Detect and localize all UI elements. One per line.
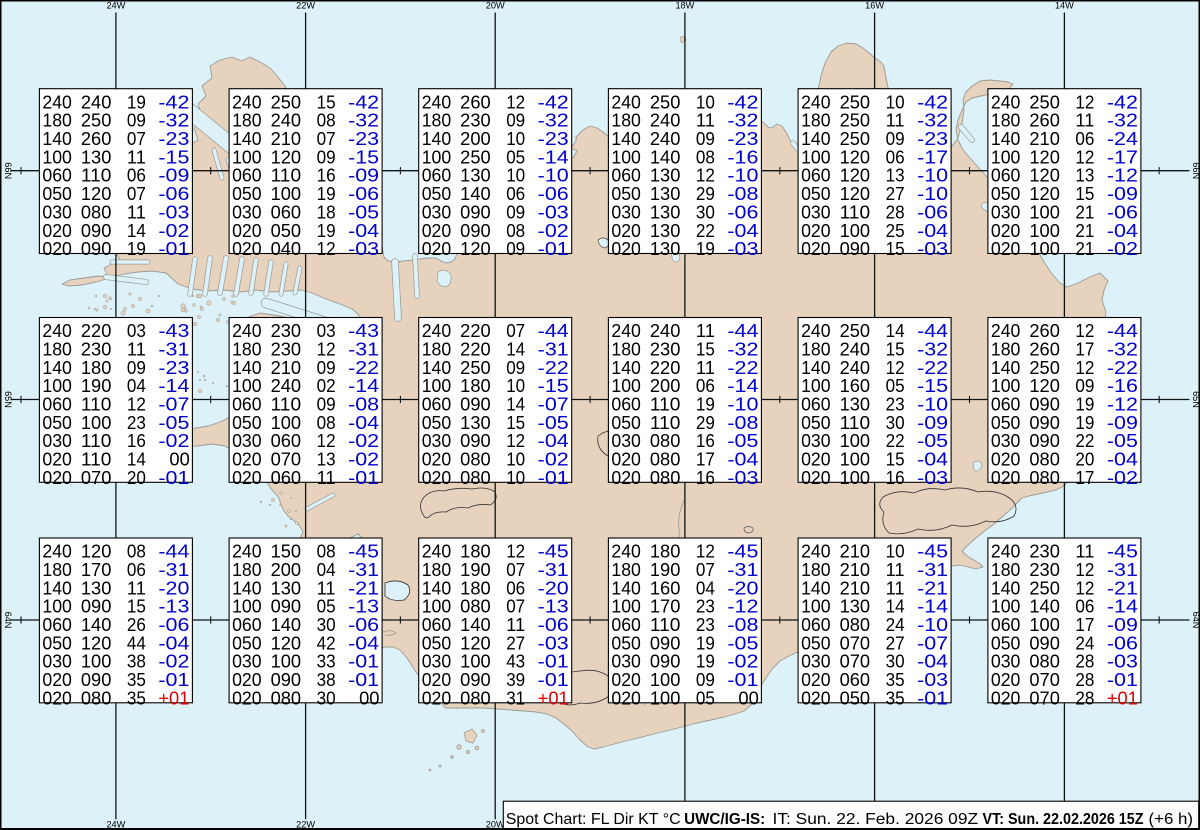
- svg-text:42: 42: [317, 633, 336, 653]
- svg-text:230: 230: [81, 340, 112, 360]
- svg-text:100: 100: [232, 376, 262, 396]
- svg-text:-12: -12: [1107, 166, 1138, 186]
- svg-text:-17: -17: [1107, 147, 1138, 167]
- svg-text:-03: -03: [348, 239, 379, 259]
- svg-text:030: 030: [611, 652, 641, 672]
- svg-text:180: 180: [422, 560, 452, 580]
- svg-text:21: 21: [1075, 239, 1094, 259]
- svg-text:07: 07: [127, 129, 146, 149]
- svg-text:240: 240: [611, 542, 641, 562]
- svg-text:100: 100: [650, 688, 681, 708]
- svg-text:06: 06: [1075, 129, 1094, 149]
- svg-text:060: 060: [801, 615, 831, 635]
- svg-text:-23: -23: [917, 129, 948, 149]
- svg-text:22: 22: [886, 431, 905, 451]
- svg-text:27: 27: [886, 184, 905, 204]
- svg-text:12: 12: [506, 92, 525, 112]
- svg-text:220: 220: [460, 321, 491, 341]
- svg-text:09: 09: [506, 111, 525, 131]
- svg-text:-04: -04: [538, 431, 569, 451]
- svg-text:030: 030: [611, 431, 641, 451]
- svg-text:-02: -02: [538, 221, 569, 241]
- svg-text:-04: -04: [158, 633, 189, 653]
- svg-text:15: 15: [1075, 184, 1094, 204]
- svg-text:-21: -21: [1107, 578, 1138, 598]
- svg-text:-04: -04: [917, 450, 948, 470]
- svg-text:060: 060: [801, 166, 831, 186]
- svg-text:-13: -13: [348, 597, 379, 617]
- svg-text:180: 180: [991, 340, 1021, 360]
- svg-text:140: 140: [611, 578, 641, 598]
- svg-text:200: 200: [650, 376, 681, 396]
- svg-text:-10: -10: [917, 166, 948, 186]
- svg-text:170: 170: [81, 560, 112, 580]
- svg-text:-22: -22: [538, 358, 569, 378]
- svg-text:06: 06: [696, 376, 715, 396]
- svg-text:120: 120: [840, 184, 871, 204]
- svg-text:020: 020: [42, 468, 72, 488]
- svg-text:04: 04: [127, 376, 146, 396]
- svg-text:-14: -14: [727, 376, 758, 396]
- svg-text:090: 090: [460, 221, 491, 241]
- svg-text:-44: -44: [727, 321, 758, 341]
- svg-text:050: 050: [611, 413, 641, 433]
- svg-text:210: 210: [840, 542, 871, 562]
- svg-text:-05: -05: [158, 413, 189, 433]
- svg-text:050: 050: [232, 413, 262, 433]
- svg-text:-31: -31: [538, 340, 569, 360]
- svg-text:28: 28: [886, 202, 905, 222]
- svg-text:020: 020: [232, 670, 262, 690]
- svg-text:-31: -31: [158, 560, 189, 580]
- svg-text:030: 030: [422, 202, 452, 222]
- svg-text:100: 100: [422, 597, 452, 617]
- svg-text:09: 09: [317, 358, 336, 378]
- svg-text:090: 090: [1029, 431, 1060, 451]
- svg-text:27: 27: [886, 633, 905, 653]
- svg-text:260: 260: [81, 129, 112, 149]
- svg-text:-09: -09: [1107, 184, 1138, 204]
- svg-text:100: 100: [1029, 615, 1060, 635]
- svg-text:11: 11: [506, 615, 525, 635]
- svg-text:140: 140: [232, 129, 262, 149]
- svg-text:060: 060: [232, 615, 262, 635]
- svg-text:020: 020: [232, 450, 262, 470]
- svg-text:240: 240: [991, 542, 1021, 562]
- svg-text:100: 100: [42, 376, 72, 396]
- svg-text:12: 12: [1075, 321, 1094, 341]
- svg-text:-09: -09: [348, 166, 379, 186]
- svg-text:120: 120: [840, 166, 871, 186]
- svg-text:020: 020: [611, 688, 641, 708]
- svg-text:240: 240: [611, 321, 641, 341]
- svg-text:07: 07: [506, 321, 525, 341]
- svg-text:12: 12: [317, 239, 336, 259]
- svg-text:180: 180: [650, 542, 681, 562]
- svg-text:-32: -32: [348, 111, 379, 131]
- svg-text:030: 030: [42, 652, 72, 672]
- svg-text:070: 070: [840, 652, 871, 672]
- svg-text:-31: -31: [348, 340, 379, 360]
- svg-text:-32: -32: [727, 340, 758, 360]
- svg-text:14: 14: [506, 340, 525, 360]
- svg-text:07: 07: [506, 597, 525, 617]
- svg-text:100: 100: [460, 652, 491, 672]
- svg-text:130: 130: [650, 239, 681, 259]
- svg-text:08: 08: [317, 413, 336, 433]
- svg-text:-01: -01: [1107, 670, 1138, 690]
- svg-text:11: 11: [886, 560, 905, 580]
- svg-text:09: 09: [506, 239, 525, 259]
- svg-text:130: 130: [460, 413, 491, 433]
- svg-text:-03: -03: [917, 670, 948, 690]
- svg-text:12: 12: [1075, 358, 1094, 378]
- svg-text:16: 16: [317, 166, 336, 186]
- svg-text:-04: -04: [727, 450, 758, 470]
- svg-text:240: 240: [991, 321, 1021, 341]
- svg-text:06: 06: [886, 147, 905, 167]
- svg-text:020: 020: [42, 450, 72, 470]
- svg-text:-44: -44: [917, 321, 948, 341]
- svg-text:210: 210: [271, 358, 302, 378]
- svg-text:110: 110: [271, 166, 302, 186]
- svg-text:090: 090: [460, 431, 491, 451]
- svg-text:100: 100: [42, 147, 72, 167]
- svg-text:070: 070: [1029, 670, 1060, 690]
- svg-text:090: 090: [460, 202, 491, 222]
- svg-text:130: 130: [650, 221, 681, 241]
- svg-text:240: 240: [422, 321, 452, 341]
- svg-text:090: 090: [1029, 395, 1060, 415]
- svg-text:-03: -03: [917, 239, 948, 259]
- svg-text:020: 020: [42, 239, 72, 259]
- svg-text:050: 050: [271, 221, 302, 241]
- svg-text:080: 080: [460, 450, 491, 470]
- svg-text:190: 190: [650, 560, 681, 580]
- svg-text:-42: -42: [348, 92, 379, 112]
- svg-text:22: 22: [1075, 431, 1094, 451]
- svg-text:140: 140: [1029, 597, 1060, 617]
- svg-text:31: 31: [506, 688, 525, 708]
- svg-text:180: 180: [42, 560, 72, 580]
- svg-text:180: 180: [232, 111, 262, 131]
- svg-text:VT: Sun. 22.02.2026 15Z: VT: Sun. 22.02.2026 15Z: [983, 811, 1144, 828]
- svg-text:30: 30: [317, 615, 336, 635]
- svg-text:17: 17: [1075, 468, 1094, 488]
- svg-text:15: 15: [317, 92, 336, 112]
- svg-text:26: 26: [127, 615, 146, 635]
- svg-text:-05: -05: [917, 431, 948, 451]
- svg-text:090: 090: [1029, 633, 1060, 653]
- svg-text:100: 100: [611, 597, 641, 617]
- svg-text:020: 020: [422, 450, 452, 470]
- svg-text:240: 240: [232, 542, 262, 562]
- svg-text:050: 050: [232, 184, 262, 204]
- svg-text:020: 020: [422, 670, 452, 690]
- svg-text:080: 080: [840, 615, 871, 635]
- svg-text:27: 27: [506, 633, 525, 653]
- svg-text:060: 060: [611, 395, 641, 415]
- svg-text:-01: -01: [538, 670, 569, 690]
- svg-text:100: 100: [840, 431, 871, 451]
- svg-text:020: 020: [801, 688, 831, 708]
- svg-text:020: 020: [801, 239, 831, 259]
- svg-text:250: 250: [840, 111, 871, 131]
- svg-text:-10: -10: [917, 615, 948, 635]
- svg-text:240: 240: [650, 129, 681, 149]
- svg-text:050: 050: [42, 633, 72, 653]
- svg-text:140: 140: [460, 184, 491, 204]
- svg-text:38: 38: [317, 670, 336, 690]
- svg-text:15: 15: [696, 340, 715, 360]
- svg-text:-42: -42: [917, 92, 948, 112]
- svg-text:020: 020: [42, 688, 72, 708]
- svg-text:+01: +01: [1107, 688, 1138, 708]
- svg-text:100: 100: [422, 147, 452, 167]
- svg-text:17: 17: [696, 450, 715, 470]
- svg-text:-01: -01: [538, 468, 569, 488]
- svg-text:180: 180: [460, 376, 491, 396]
- svg-text:020: 020: [991, 221, 1021, 241]
- svg-text:100: 100: [801, 597, 831, 617]
- svg-text:030: 030: [991, 202, 1021, 222]
- svg-text:030: 030: [232, 431, 262, 451]
- svg-text:130: 130: [650, 184, 681, 204]
- svg-text:130: 130: [840, 597, 871, 617]
- svg-text:240: 240: [801, 321, 831, 341]
- svg-text:-01: -01: [727, 670, 758, 690]
- svg-text:150: 150: [271, 542, 302, 562]
- svg-text:35: 35: [127, 670, 146, 690]
- svg-text:070: 070: [81, 468, 112, 488]
- svg-text:12: 12: [1075, 147, 1094, 167]
- svg-text:13: 13: [886, 166, 905, 186]
- svg-text:-01: -01: [158, 468, 189, 488]
- svg-text:13: 13: [1075, 166, 1094, 186]
- svg-text:100: 100: [991, 597, 1021, 617]
- svg-text:060: 060: [801, 395, 831, 415]
- svg-text:-04: -04: [1107, 450, 1138, 470]
- svg-text:050: 050: [801, 633, 831, 653]
- svg-text:24: 24: [886, 615, 905, 635]
- svg-text:-02: -02: [158, 652, 189, 672]
- svg-text:14W: 14W: [1055, 1, 1074, 11]
- svg-text:140: 140: [271, 615, 302, 635]
- svg-text:240: 240: [271, 111, 302, 131]
- svg-text:020: 020: [801, 221, 831, 241]
- svg-text:10: 10: [506, 166, 525, 186]
- svg-text:020: 020: [232, 688, 262, 708]
- svg-text:14: 14: [127, 450, 146, 470]
- svg-text:-42: -42: [538, 92, 569, 112]
- svg-text:060: 060: [422, 395, 452, 415]
- svg-text:-07: -07: [158, 395, 189, 415]
- svg-text:-31: -31: [727, 560, 758, 580]
- svg-text:-08: -08: [727, 413, 758, 433]
- svg-text:11: 11: [127, 202, 146, 222]
- svg-text:200: 200: [460, 129, 491, 149]
- svg-text:020: 020: [42, 221, 72, 241]
- svg-text:230: 230: [271, 340, 302, 360]
- svg-text:04: 04: [696, 578, 715, 598]
- svg-text:140: 140: [991, 129, 1021, 149]
- svg-text:100: 100: [991, 376, 1021, 396]
- svg-text:64N: 64N: [3, 612, 13, 629]
- svg-text:06: 06: [127, 560, 146, 580]
- svg-text:05: 05: [317, 597, 336, 617]
- svg-text:020: 020: [232, 468, 262, 488]
- svg-text:080: 080: [271, 688, 302, 708]
- svg-text:020: 020: [611, 239, 641, 259]
- svg-text:140: 140: [611, 129, 641, 149]
- svg-text:080: 080: [81, 202, 112, 222]
- svg-text:050: 050: [422, 633, 452, 653]
- svg-text:100: 100: [232, 597, 262, 617]
- svg-text:-01: -01: [348, 468, 379, 488]
- svg-text:12: 12: [317, 340, 336, 360]
- svg-text:16: 16: [696, 431, 715, 451]
- svg-text:050: 050: [991, 633, 1021, 653]
- svg-text:-06: -06: [158, 615, 189, 635]
- svg-text:08: 08: [317, 111, 336, 131]
- svg-text:140: 140: [42, 129, 72, 149]
- svg-text:100: 100: [840, 468, 871, 488]
- svg-text:030: 030: [232, 202, 262, 222]
- svg-text:020: 020: [232, 221, 262, 241]
- svg-text:140: 140: [650, 147, 681, 167]
- svg-text:140: 140: [42, 358, 72, 378]
- svg-text:090: 090: [650, 652, 681, 672]
- svg-text:-32: -32: [727, 111, 758, 131]
- svg-text:30: 30: [886, 652, 905, 672]
- svg-text:-03: -03: [158, 202, 189, 222]
- svg-text:040: 040: [271, 239, 302, 259]
- svg-text:120: 120: [81, 184, 112, 204]
- svg-text:-07: -07: [538, 395, 569, 415]
- svg-text:-10: -10: [917, 184, 948, 204]
- svg-text:060: 060: [611, 615, 641, 635]
- svg-text:220: 220: [81, 321, 112, 341]
- svg-text:-04: -04: [348, 221, 379, 241]
- svg-text:33: 33: [317, 652, 336, 672]
- svg-text:10: 10: [506, 376, 525, 396]
- svg-text:11: 11: [127, 340, 146, 360]
- svg-text:22W: 22W: [296, 1, 315, 11]
- svg-text:15: 15: [506, 413, 525, 433]
- svg-text:-07: -07: [917, 633, 948, 653]
- svg-text:-31: -31: [1107, 560, 1138, 580]
- svg-text:19: 19: [1075, 395, 1094, 415]
- svg-text:240: 240: [232, 92, 262, 112]
- svg-text:15: 15: [886, 450, 905, 470]
- svg-text:35: 35: [886, 688, 905, 708]
- svg-text:-02: -02: [1107, 239, 1138, 259]
- svg-text:180: 180: [611, 560, 641, 580]
- svg-text:020: 020: [611, 670, 641, 690]
- svg-text:-04: -04: [348, 413, 379, 433]
- svg-text:050: 050: [801, 184, 831, 204]
- svg-text:140: 140: [801, 358, 831, 378]
- svg-text:10: 10: [506, 450, 525, 470]
- svg-text:08: 08: [696, 147, 715, 167]
- svg-text:IT: Sun. 22. Feb. 2026 09Z: IT: Sun. 22. Feb. 2026 09Z: [773, 811, 979, 828]
- svg-text:-05: -05: [348, 202, 379, 222]
- svg-text:11: 11: [317, 578, 336, 598]
- svg-text:050: 050: [991, 184, 1021, 204]
- svg-text:12: 12: [1075, 578, 1094, 598]
- svg-text:250: 250: [460, 358, 491, 378]
- svg-text:07: 07: [317, 129, 336, 149]
- svg-text:09: 09: [317, 147, 336, 167]
- svg-text:240: 240: [991, 92, 1021, 112]
- svg-text:140: 140: [422, 578, 452, 598]
- svg-text:020: 020: [991, 468, 1021, 488]
- svg-text:240: 240: [650, 111, 681, 131]
- svg-text:-09: -09: [158, 166, 189, 186]
- svg-text:120: 120: [81, 542, 112, 562]
- svg-text:110: 110: [271, 395, 302, 415]
- svg-text:240: 240: [42, 542, 72, 562]
- svg-text:-32: -32: [158, 111, 189, 131]
- svg-text:190: 190: [81, 376, 112, 396]
- svg-text:120: 120: [1029, 166, 1060, 186]
- svg-text:210: 210: [1029, 129, 1060, 149]
- svg-text:-10: -10: [917, 395, 948, 415]
- svg-text:120: 120: [1029, 147, 1060, 167]
- svg-text:16: 16: [127, 431, 146, 451]
- svg-text:19: 19: [127, 239, 146, 259]
- svg-text:25: 25: [886, 221, 905, 241]
- svg-text:050: 050: [422, 184, 452, 204]
- svg-text:090: 090: [460, 670, 491, 690]
- svg-text:-42: -42: [1107, 92, 1138, 112]
- svg-text:110: 110: [650, 395, 681, 415]
- svg-text:020: 020: [422, 468, 452, 488]
- svg-text:020: 020: [611, 450, 641, 470]
- svg-text:-23: -23: [348, 129, 379, 149]
- svg-text:28: 28: [1075, 652, 1094, 672]
- svg-text:-31: -31: [348, 560, 379, 580]
- svg-text:09: 09: [506, 358, 525, 378]
- svg-text:-14: -14: [348, 376, 379, 396]
- svg-text:-03: -03: [1107, 652, 1138, 672]
- svg-text:-03: -03: [538, 202, 569, 222]
- svg-text:19: 19: [317, 184, 336, 204]
- svg-text:130: 130: [271, 578, 302, 598]
- svg-text:-10: -10: [538, 166, 569, 186]
- svg-text:120: 120: [840, 147, 871, 167]
- svg-text:-20: -20: [538, 578, 569, 598]
- svg-text:050: 050: [840, 688, 871, 708]
- svg-text:-17: -17: [917, 147, 948, 167]
- svg-text:-22: -22: [917, 358, 948, 378]
- svg-text:080: 080: [650, 431, 681, 451]
- svg-text:050: 050: [232, 633, 262, 653]
- svg-text:110: 110: [81, 450, 112, 470]
- svg-text:23: 23: [696, 597, 715, 617]
- svg-text:100: 100: [991, 147, 1021, 167]
- svg-text:24W: 24W: [106, 1, 125, 11]
- svg-text:-15: -15: [158, 147, 189, 167]
- svg-text:-32: -32: [917, 111, 948, 131]
- svg-text:-13: -13: [158, 597, 189, 617]
- svg-text:240: 240: [271, 376, 302, 396]
- svg-text:(+6 h): (+6 h): [1149, 811, 1194, 828]
- svg-text:-43: -43: [348, 321, 379, 341]
- svg-text:-22: -22: [727, 358, 758, 378]
- svg-text:12: 12: [127, 395, 146, 415]
- svg-text:-31: -31: [917, 560, 948, 580]
